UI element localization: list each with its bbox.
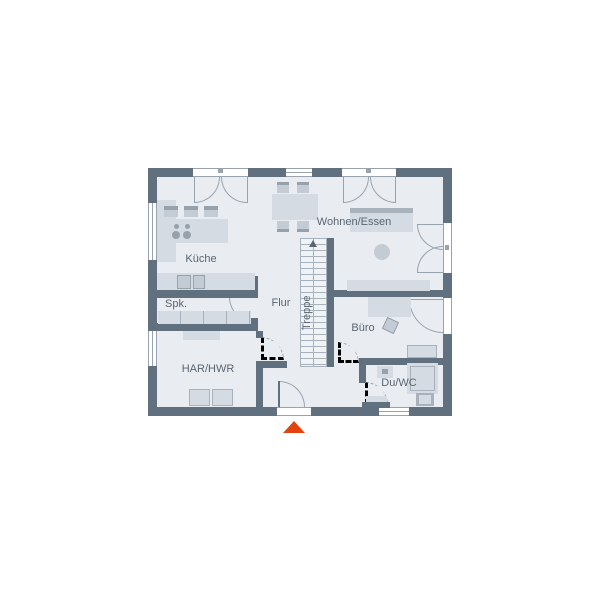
dining-table [272,194,318,220]
room-label-spk: Spk. [165,298,187,310]
round-rug [374,244,390,260]
room-label-buero: Büro [351,322,374,334]
door-marker-icon [218,169,223,173]
wall-entry-stub [256,361,287,368]
kitchen-island [157,219,228,243]
cooktop-burner [185,224,190,229]
washing-machine [189,389,210,406]
exterior-wall-left-3 [148,366,157,416]
cooktop-burner [172,231,180,239]
window-duwc [379,407,409,416]
window-har [148,331,157,366]
exterior-wall-left-1 [148,168,157,203]
wall-duwc-south-stub [362,402,390,408]
toilet-seat [419,395,431,404]
dining-chair [277,221,289,232]
exterior-wall-right-2 [443,273,452,298]
window-kitchen [148,203,157,260]
dryer [212,389,233,406]
cooktop-burner [183,231,191,239]
exterior-wall-right-1 [443,168,452,223]
wardrobe [407,345,437,358]
door-leaf [343,177,344,203]
dining-chair [297,182,309,193]
opening-entrance-door [277,407,311,416]
door-leaf [417,272,443,273]
room-label-har: HAR/HWR [182,363,235,375]
room-label-wohnen: Wohnen/Essen [317,216,391,228]
lowboard [347,280,430,291]
stair-direction-arrow-icon [309,240,317,247]
door-marker-icon [366,169,371,173]
wall-stairwell [327,238,334,367]
window-dining [286,168,312,177]
door-leaf [417,224,443,225]
exterior-wall-top-3 [312,168,342,177]
opening-door-buero-east [443,298,452,334]
room-label-flur: Flur [272,297,291,309]
door-leaf [247,177,248,203]
desk [368,297,411,317]
wall-kueche-spk [157,290,258,298]
entrance-marker-icon [283,421,305,433]
wall-har-east-top [256,331,263,338]
wall-spk-har [157,323,258,331]
kitchen-appliance [177,275,191,289]
door-leaf [395,177,396,203]
door-marker-icon [445,245,449,250]
door-leaf [194,177,195,203]
kitchen-counter-south [157,273,255,290]
har-shelf [183,331,220,340]
floor-plan: Treppe Küche Spk. Flur Wohnen/Essen Büro… [0,0,600,600]
door-leaf [409,299,443,300]
sink-basin [382,369,388,374]
exterior-wall-bottom-2 [311,407,379,416]
bar-stool [204,206,218,217]
exterior-wall-left-2 [148,260,157,331]
exterior-wall-right-3 [443,334,452,416]
wall-wohnen-buero [334,290,443,297]
duwc-shelf [366,396,387,402]
cooktop-burner [174,224,179,229]
room-label-kueche: Küche [185,253,216,265]
entrance-door-leaf [278,381,280,407]
bar-stool [164,206,178,217]
pantry-shelf [158,311,251,324]
dining-chair [297,221,309,232]
bar-stool [184,206,198,217]
exterior-wall-bottom-1 [148,407,277,416]
kitchen-appliance [193,275,205,289]
room-label-treppe: Treppe [301,278,314,348]
dining-chair [277,182,289,193]
wall-duwc-west [359,358,366,383]
room-label-duwc: Du/WC [381,377,416,389]
exterior-wall-top-2 [248,168,286,177]
